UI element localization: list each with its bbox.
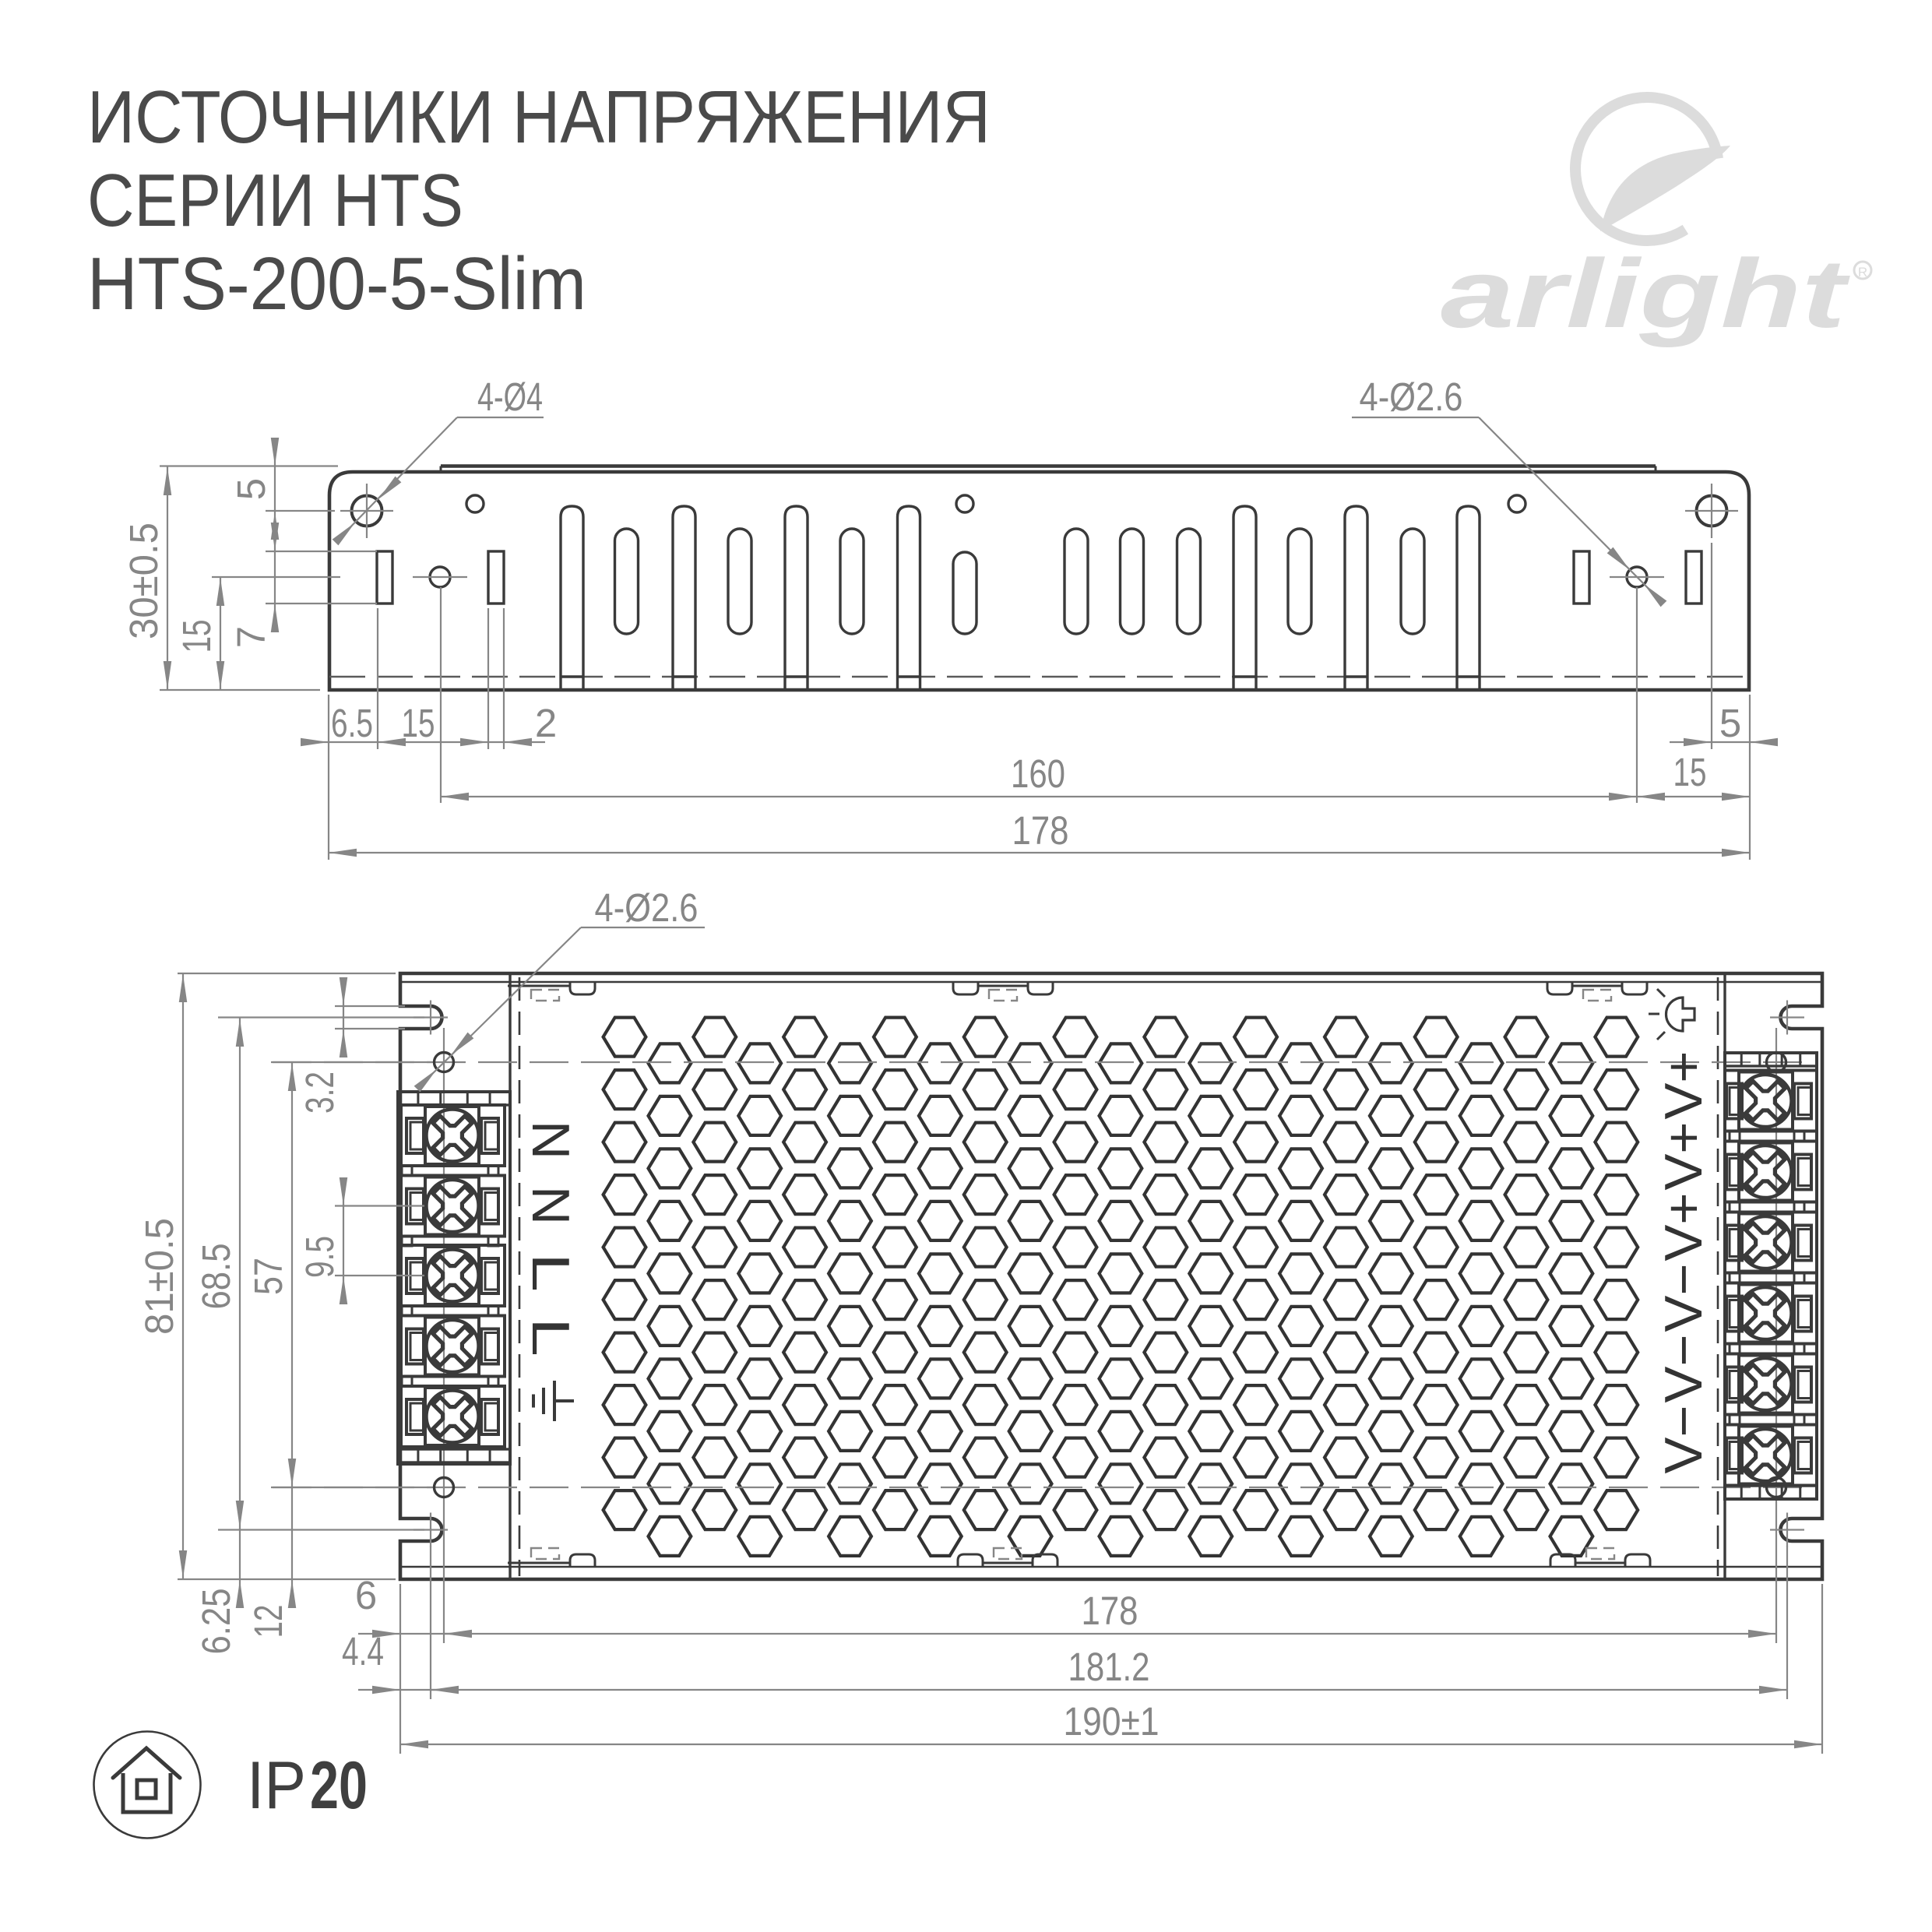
svg-text:181.2: 181.2 xyxy=(1068,1645,1150,1689)
svg-text:5: 5 xyxy=(229,478,273,500)
svg-text:160: 160 xyxy=(1011,751,1065,796)
svg-text:N: N xyxy=(521,1121,580,1160)
svg-text:190±1: 190±1 xyxy=(1064,1699,1160,1744)
svg-text:30±0.5: 30±0.5 xyxy=(121,523,166,639)
svg-text:4.4: 4.4 xyxy=(342,1629,384,1673)
svg-text:V+: V+ xyxy=(1654,1193,1713,1262)
svg-text:HTS-200-5-Slim: HTS-200-5-Slim xyxy=(87,242,586,326)
svg-text:V−: V− xyxy=(1654,1335,1713,1403)
svg-text:12: 12 xyxy=(246,1605,290,1638)
svg-text:15: 15 xyxy=(402,701,435,745)
svg-text:5: 5 xyxy=(1719,701,1741,745)
svg-text:6.5: 6.5 xyxy=(331,701,373,745)
svg-text:6: 6 xyxy=(355,1573,377,1617)
svg-text:15: 15 xyxy=(1673,750,1707,794)
svg-text:V+: V+ xyxy=(1654,1051,1713,1120)
svg-text:7: 7 xyxy=(229,626,273,648)
svg-text:57: 57 xyxy=(246,1258,290,1295)
svg-text:ИСТОЧНИКИ НАПРЯЖЕНИЯ: ИСТОЧНИКИ НАПРЯЖЕНИЯ xyxy=(87,76,991,159)
svg-text:СЕРИИ HTS: СЕРИИ HTS xyxy=(87,159,463,242)
svg-text:L: L xyxy=(521,1253,580,1292)
svg-text:68.5: 68.5 xyxy=(194,1244,238,1310)
svg-text:2: 2 xyxy=(535,701,557,745)
svg-text:178: 178 xyxy=(1082,1589,1138,1633)
svg-text:4-Ø2.6: 4-Ø2.6 xyxy=(595,885,699,930)
svg-text:N: N xyxy=(521,1186,580,1225)
svg-text:81±0.5: 81±0.5 xyxy=(137,1218,181,1335)
svg-text:V−: V− xyxy=(1654,1406,1713,1474)
svg-text:arlight: arlight xyxy=(1441,240,1850,348)
svg-text:178: 178 xyxy=(1012,808,1069,853)
svg-text:L: L xyxy=(521,1318,580,1357)
svg-text:V+: V+ xyxy=(1654,1122,1713,1191)
svg-text:4-Ø2.6: 4-Ø2.6 xyxy=(1360,375,1463,419)
svg-text:9.5: 9.5 xyxy=(297,1236,342,1278)
svg-text:15: 15 xyxy=(174,620,219,653)
svg-text:IP: IP xyxy=(247,1748,306,1823)
svg-text:3.2: 3.2 xyxy=(297,1072,342,1114)
svg-text:4-Ø4: 4-Ø4 xyxy=(477,375,543,419)
svg-text:6.25: 6.25 xyxy=(194,1589,238,1655)
svg-text:20: 20 xyxy=(310,1748,368,1823)
svg-text:V−: V− xyxy=(1654,1264,1713,1332)
svg-text:R: R xyxy=(1858,265,1867,280)
